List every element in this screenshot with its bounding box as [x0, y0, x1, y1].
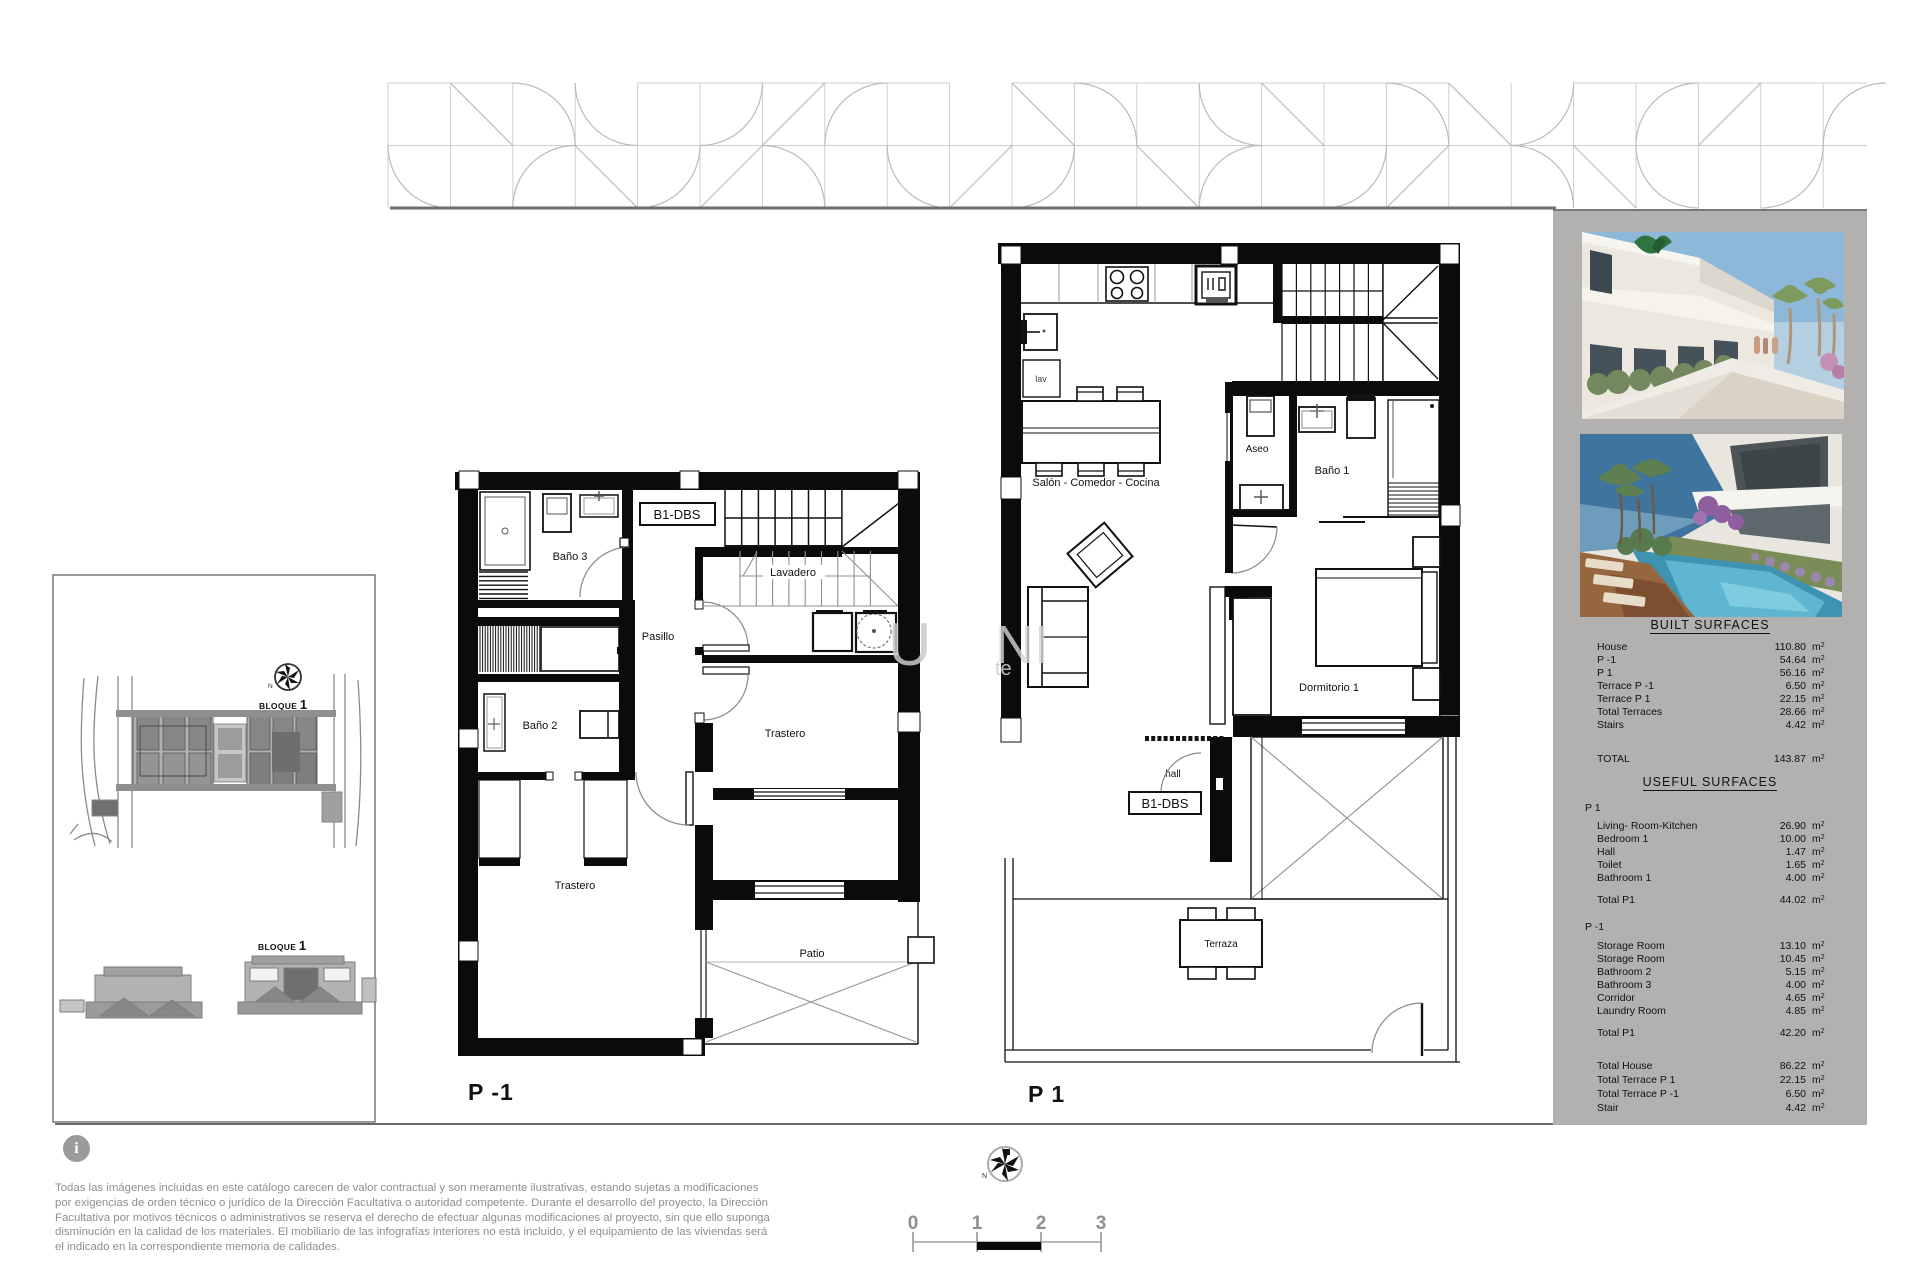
svg-text:Salón - Comedor - Cocina: Salón - Comedor - Cocina	[1032, 477, 1160, 489]
svg-text:Pasillo: Pasillo	[642, 631, 674, 643]
svg-text:B1-DBS: B1-DBS	[654, 507, 701, 522]
svg-text:Patio: Patio	[799, 948, 824, 960]
svg-text:Baño 3: Baño 3	[553, 551, 588, 563]
svg-text:Terraza: Terraza	[1204, 939, 1238, 950]
svg-text:Baño 2: Baño 2	[523, 720, 558, 732]
svg-text:BLOQUE 1: BLOQUE 1	[258, 938, 306, 953]
svg-text:0: 0	[908, 1213, 919, 1234]
svg-text:Trastero: Trastero	[765, 728, 806, 740]
svg-text:1: 1	[972, 1213, 983, 1234]
svg-text:N: N	[268, 683, 273, 690]
svg-text:lav: lav	[1035, 374, 1047, 384]
svg-text:N: N	[982, 1173, 987, 1180]
svg-text:3: 3	[1096, 1213, 1107, 1234]
svg-text:Aseo: Aseo	[1246, 444, 1269, 455]
svg-text:P 1: P 1	[1028, 1081, 1065, 1107]
svg-text:P -1: P -1	[468, 1079, 514, 1105]
svg-text:BLOQUE 1: BLOQUE 1	[259, 697, 307, 712]
svg-text:Baño 1: Baño 1	[1315, 465, 1350, 477]
svg-text:Lavadero: Lavadero	[770, 567, 816, 579]
svg-text:2: 2	[1036, 1213, 1047, 1234]
svg-text:Dormitorio 1: Dormitorio 1	[1299, 682, 1359, 694]
svg-text:Trastero: Trastero	[555, 880, 596, 892]
svg-text:B1-DBS: B1-DBS	[1142, 796, 1189, 811]
